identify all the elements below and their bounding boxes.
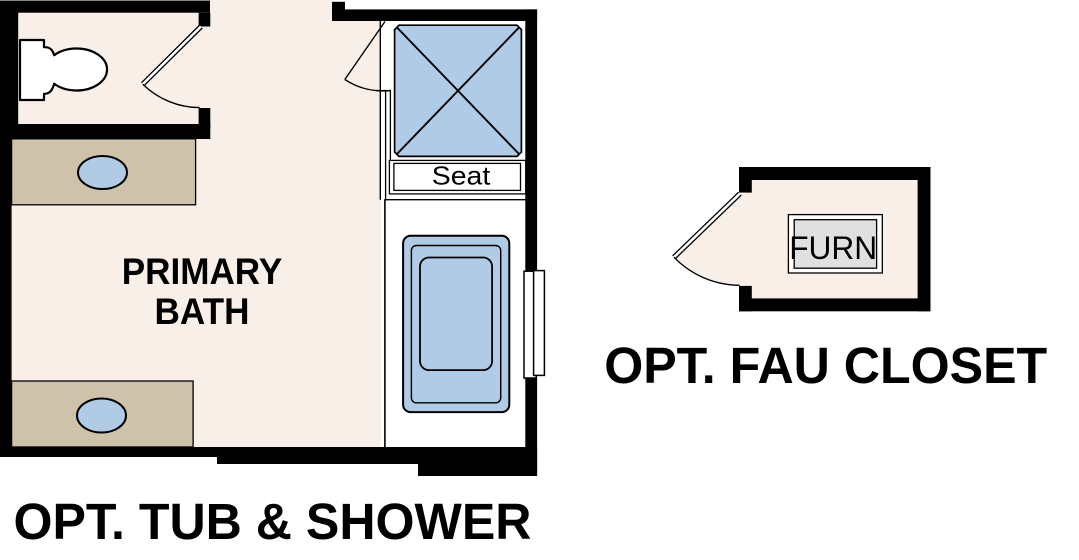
svg-text:OPT. TUB & SHOWER: OPT. TUB & SHOWER	[14, 493, 532, 550]
svg-text:PRIMARY: PRIMARY	[122, 251, 283, 292]
svg-text:OPT. FAU CLOSET: OPT. FAU CLOSET	[604, 337, 1047, 394]
svg-text:Seat: Seat	[432, 161, 491, 191]
svg-text:FURN: FURN	[789, 230, 877, 266]
svg-text:BATH: BATH	[155, 291, 250, 332]
